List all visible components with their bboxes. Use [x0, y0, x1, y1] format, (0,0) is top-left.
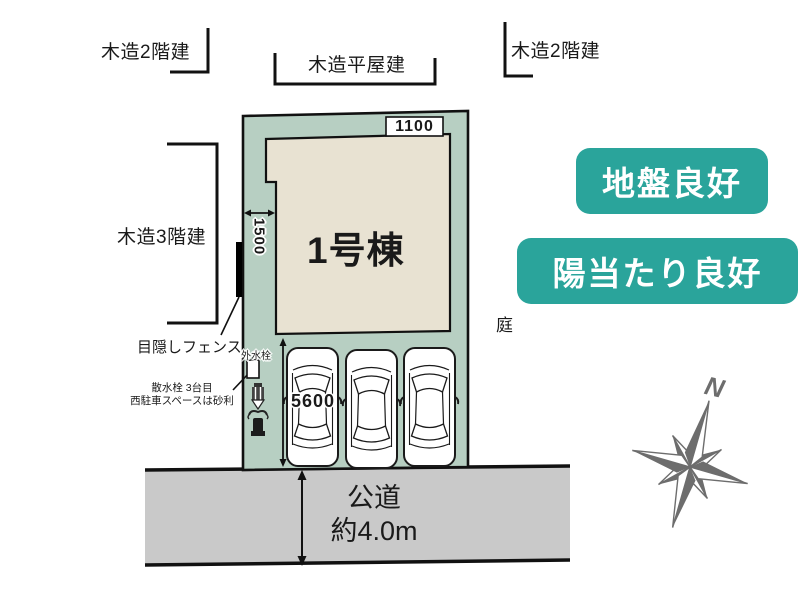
badge-ground-condition-label: 地盤良好	[602, 157, 742, 205]
badge-ground-condition: 地盤良好	[576, 148, 768, 214]
neighbor-label-top-center: 木造平屋建	[308, 50, 406, 77]
road-label: 公道 約4.0m	[299, 482, 449, 548]
neighbor-label-top-right: 木造2階建	[511, 36, 600, 63]
car-3	[401, 348, 458, 466]
badge-sunlight: 陽当たり良好	[517, 238, 798, 304]
neighbor-label-left: 木造3階建	[117, 222, 206, 249]
neighbor-label-top-left: 木造2階建	[101, 37, 190, 64]
outdoor-tap-icon	[247, 360, 259, 378]
dim-5600: 5600	[291, 391, 335, 412]
sprinkler-note-line2: 西駐車スペースは砂利	[126, 395, 238, 408]
sprinkler-note-line1: 散水栓 3台目	[126, 382, 238, 395]
badge-sunlight-label: 陽当たり良好	[553, 247, 763, 295]
privacy-fence-bar	[236, 242, 242, 297]
dim-1100: 1100	[386, 118, 443, 136]
site-plan: 木造2階建 木造平屋建 木造2階建 木造3階建 1号棟 1100 1500 56…	[0, 0, 800, 598]
privacy-fence-label: 目隠しフェンス	[137, 336, 242, 357]
fence-leader-line	[221, 297, 239, 335]
road-name: 公道	[299, 482, 449, 515]
sprinkler-note: 散水栓 3台目 西駐車スペースは砂利	[126, 382, 238, 408]
road-width: 約4.0m	[299, 515, 449, 548]
dim-1500: 1500	[251, 205, 268, 269]
car-2	[343, 350, 400, 468]
compass-rose-icon	[615, 384, 767, 544]
outdoor-tap-label: 外水栓	[241, 347, 271, 362]
building-name: 1号棟	[307, 220, 405, 274]
garden-label: 庭	[496, 311, 513, 336]
